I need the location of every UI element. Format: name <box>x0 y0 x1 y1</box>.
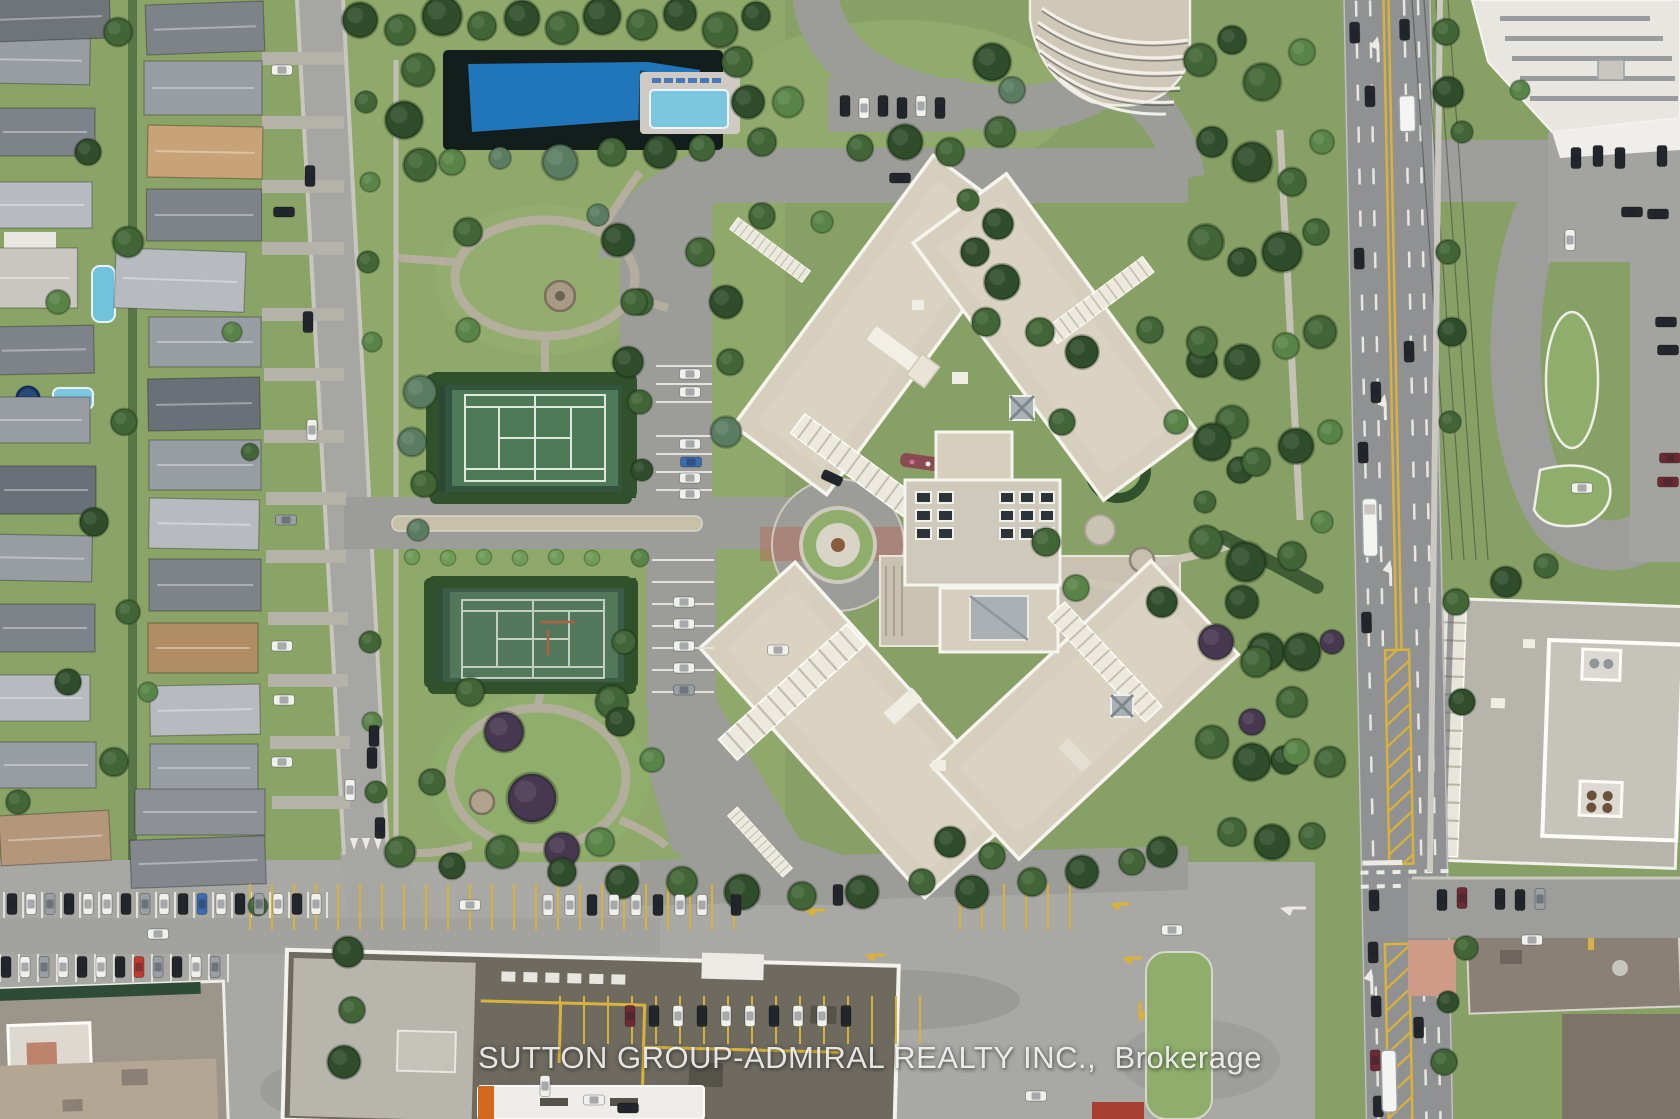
tree <box>1228 248 1257 277</box>
tree <box>548 858 577 887</box>
tree <box>1119 849 1145 875</box>
bottom-road <box>0 918 660 954</box>
tree <box>749 203 775 229</box>
car <box>817 1006 827 1027</box>
tree <box>1318 420 1342 444</box>
car <box>102 894 112 915</box>
tree <box>1066 336 1099 369</box>
tree <box>333 937 364 968</box>
tree <box>724 874 759 909</box>
car <box>745 1006 755 1027</box>
tennis-court-north <box>430 376 636 498</box>
car <box>273 894 283 915</box>
house-roof <box>0 35 90 85</box>
tree <box>1198 624 1233 659</box>
car <box>235 894 245 915</box>
tree <box>504 0 539 35</box>
tree <box>546 12 579 45</box>
car <box>148 929 169 939</box>
car <box>859 98 869 119</box>
tree <box>1254 824 1289 859</box>
car <box>197 894 207 915</box>
car <box>675 895 685 916</box>
car <box>367 748 377 769</box>
tree <box>1018 868 1047 897</box>
tree <box>512 550 527 565</box>
house-roof <box>150 744 258 792</box>
car <box>674 641 695 651</box>
tree <box>732 86 765 119</box>
tree <box>667 867 698 898</box>
tree <box>508 774 556 822</box>
tree <box>602 224 635 257</box>
tree <box>1137 317 1163 343</box>
tree <box>1190 526 1223 559</box>
car <box>1622 207 1643 217</box>
tree <box>748 128 777 157</box>
red-kiosk-roof <box>1092 1102 1144 1119</box>
car <box>375 818 385 839</box>
house-roof <box>147 189 262 241</box>
stop-bar <box>1362 860 1402 866</box>
transit-bus <box>1381 1050 1397 1112</box>
car <box>369 726 379 747</box>
tree <box>1437 991 1459 1013</box>
car <box>543 895 553 916</box>
car <box>1371 996 1381 1017</box>
tree <box>1310 130 1334 154</box>
tree <box>385 101 422 138</box>
car <box>840 96 850 117</box>
tree <box>222 322 242 342</box>
house-roof <box>0 534 92 582</box>
car <box>649 1006 659 1027</box>
tree <box>440 550 455 565</box>
tree <box>1443 589 1469 615</box>
tree <box>1194 491 1216 513</box>
rooftop-ac-unit <box>1010 396 1034 420</box>
tree <box>631 549 649 567</box>
tree <box>116 600 140 624</box>
car <box>890 173 911 183</box>
tree <box>846 876 879 909</box>
tree <box>1534 554 1558 578</box>
tree <box>360 172 380 192</box>
tree <box>104 18 133 47</box>
car <box>565 895 575 916</box>
tree <box>1233 743 1270 780</box>
tree <box>957 189 979 211</box>
car <box>680 439 701 449</box>
house-roof <box>0 0 111 42</box>
car <box>631 895 641 916</box>
tree <box>241 443 259 461</box>
loop-island-2 <box>1534 466 1610 527</box>
outdoor-pool <box>640 72 740 134</box>
tree <box>606 708 635 737</box>
car <box>1026 1091 1047 1101</box>
house-roof <box>149 317 261 367</box>
tree <box>644 136 677 169</box>
tree <box>385 15 416 46</box>
car <box>1522 935 1543 945</box>
car <box>1660 453 1680 463</box>
car <box>254 894 264 915</box>
car <box>1648 209 1669 219</box>
tree <box>1315 747 1346 778</box>
car <box>1368 942 1378 963</box>
tree <box>1241 647 1272 678</box>
tree <box>1049 409 1075 435</box>
car <box>674 663 695 673</box>
tree <box>328 1046 361 1079</box>
tree <box>357 251 379 273</box>
tree <box>111 409 137 435</box>
house-roof <box>0 604 95 652</box>
tree <box>999 77 1025 103</box>
car <box>134 957 144 978</box>
tree <box>887 124 922 159</box>
tree <box>468 12 497 41</box>
tree <box>1277 687 1308 718</box>
tree <box>972 308 1001 337</box>
tree <box>1436 240 1460 264</box>
house-roof <box>0 325 94 375</box>
tree <box>454 218 483 247</box>
tree <box>1320 630 1344 654</box>
tree <box>80 508 109 537</box>
house-roof <box>130 836 267 889</box>
car <box>697 895 707 916</box>
tree <box>984 264 1019 299</box>
tree <box>702 12 737 47</box>
car <box>1404 341 1414 362</box>
house-roof <box>148 623 258 673</box>
leftplaza-building <box>0 981 228 1119</box>
tree <box>742 2 771 31</box>
tree <box>612 630 636 654</box>
tree <box>1510 80 1530 100</box>
car <box>153 957 163 978</box>
car <box>935 98 945 119</box>
car <box>768 645 789 655</box>
car <box>653 895 663 916</box>
tree <box>456 678 485 707</box>
car <box>1572 483 1593 493</box>
tree <box>548 549 563 564</box>
topright-parking-strip <box>1630 262 1680 562</box>
car <box>1399 19 1409 40</box>
tree <box>439 853 465 879</box>
tree <box>1454 936 1478 960</box>
tree <box>1026 318 1055 347</box>
tree <box>55 669 81 695</box>
tree <box>1303 219 1329 245</box>
car <box>680 387 701 397</box>
tree <box>628 390 652 414</box>
house-roof <box>135 789 265 835</box>
car <box>897 98 907 119</box>
tree <box>1196 726 1229 759</box>
car <box>20 957 30 978</box>
tree <box>1187 327 1218 358</box>
tree <box>484 712 524 752</box>
car <box>307 420 317 441</box>
house-roof <box>144 61 262 115</box>
car <box>1457 888 1467 909</box>
lot-boulevard-island <box>1146 952 1212 1119</box>
tree <box>1491 567 1522 598</box>
tree <box>664 0 697 31</box>
tree <box>640 748 664 772</box>
tree <box>113 227 144 258</box>
house-roof <box>145 1 265 55</box>
tree <box>584 550 599 565</box>
tree <box>6 790 30 814</box>
car <box>769 1006 779 1027</box>
tree <box>788 882 817 911</box>
tree <box>1433 19 1459 45</box>
tree <box>1193 423 1230 460</box>
car <box>292 894 302 915</box>
tree <box>1304 316 1337 349</box>
car <box>1657 146 1667 167</box>
car <box>178 894 188 915</box>
tree <box>583 0 620 35</box>
tree <box>456 318 480 342</box>
tree <box>1066 856 1099 889</box>
tree <box>717 349 743 375</box>
tree <box>613 347 644 378</box>
rooftop-ac-unit <box>1111 695 1133 717</box>
tree <box>1449 689 1475 715</box>
watermark: SUTTON GROUP-ADMIRAL REALTY INC., Broker… <box>478 1040 1262 1076</box>
tree <box>909 869 935 895</box>
tree <box>1433 77 1464 108</box>
car <box>305 166 315 187</box>
car <box>159 894 169 915</box>
tree <box>385 837 416 868</box>
tree <box>1278 542 1307 571</box>
tree <box>1283 739 1309 765</box>
tree <box>1226 542 1266 582</box>
car <box>731 895 741 916</box>
car <box>681 457 702 467</box>
car <box>311 894 321 915</box>
house-roof <box>0 182 92 228</box>
car <box>1369 890 1379 911</box>
car <box>584 1095 605 1105</box>
backyard-pool <box>92 266 115 322</box>
tree <box>1032 528 1061 557</box>
tree <box>1438 318 1467 347</box>
car <box>1349 22 1359 43</box>
tree <box>961 238 990 267</box>
car <box>841 1006 851 1027</box>
tree <box>439 149 465 175</box>
car <box>1658 477 1679 487</box>
car <box>39 957 49 978</box>
car <box>115 957 125 978</box>
tree <box>486 836 519 869</box>
car <box>833 885 843 906</box>
tree <box>587 204 609 226</box>
car <box>721 1006 731 1027</box>
tree <box>621 289 647 315</box>
car <box>1358 442 1368 463</box>
tree <box>1262 232 1302 272</box>
tree <box>342 2 377 37</box>
tree <box>339 997 365 1023</box>
car <box>1354 248 1364 269</box>
tree <box>1278 168 1307 197</box>
tree <box>598 138 627 167</box>
bottomright-condo <box>1415 594 1680 879</box>
tree <box>847 135 873 161</box>
house-roof <box>147 125 263 179</box>
tree <box>411 471 437 497</box>
tree <box>419 769 445 795</box>
tennis-court-south <box>428 578 636 690</box>
car <box>191 957 201 978</box>
car <box>674 597 695 607</box>
car <box>272 65 293 75</box>
tree <box>973 43 1010 80</box>
tree <box>1273 333 1299 359</box>
tree <box>985 117 1016 148</box>
car <box>680 473 701 483</box>
tree <box>362 332 382 352</box>
car <box>878 96 888 117</box>
car <box>26 894 36 915</box>
house-roof <box>0 810 111 866</box>
car <box>680 489 701 499</box>
car <box>618 1103 639 1113</box>
tree <box>956 876 989 909</box>
tree <box>404 549 419 564</box>
tree <box>722 47 753 78</box>
tree <box>100 748 129 777</box>
car <box>274 207 295 217</box>
tree <box>1232 142 1272 182</box>
car <box>587 895 597 916</box>
tree <box>936 138 965 167</box>
house-roof <box>0 397 90 443</box>
tree <box>1243 63 1280 100</box>
car <box>680 369 701 379</box>
tree <box>476 549 491 564</box>
car <box>1565 230 1575 251</box>
house-roof <box>148 377 261 431</box>
car <box>793 1006 803 1027</box>
tree <box>489 147 511 169</box>
tree <box>1226 586 1259 619</box>
car <box>276 515 297 525</box>
tree <box>711 417 742 448</box>
car <box>609 895 619 916</box>
tree <box>1197 127 1228 158</box>
aerial-photo: SUTTON GROUP-ADMIRAL REALTY INC., Broker… <box>0 0 1680 1119</box>
house-roof <box>149 498 260 550</box>
tree <box>407 519 429 541</box>
house-roof <box>0 742 96 788</box>
car <box>1413 1017 1423 1038</box>
car <box>1370 1050 1380 1071</box>
house-roof <box>0 466 96 514</box>
tree <box>686 238 715 267</box>
yellow-hatched-median <box>1385 650 1413 864</box>
tree <box>1184 44 1217 77</box>
car <box>1593 146 1603 167</box>
tree <box>1218 818 1247 847</box>
entrance-median <box>392 516 702 531</box>
house-roof <box>149 559 261 611</box>
tree <box>586 828 615 857</box>
car <box>674 619 695 629</box>
tree <box>398 428 427 457</box>
tree <box>1299 823 1325 849</box>
tree <box>1451 121 1473 143</box>
tree <box>773 87 804 118</box>
car <box>1371 382 1381 403</box>
tree <box>404 376 437 409</box>
car <box>540 1076 550 1097</box>
car <box>64 894 74 915</box>
tree <box>1283 633 1320 670</box>
car <box>674 685 695 695</box>
tree <box>75 139 101 165</box>
tree <box>46 290 70 314</box>
car <box>216 894 226 915</box>
car <box>1571 148 1581 169</box>
car <box>210 957 220 978</box>
house-roof <box>150 684 261 736</box>
tree <box>983 209 1014 240</box>
car <box>1 957 11 978</box>
tree <box>689 135 715 161</box>
tree <box>631 459 653 481</box>
car <box>673 1006 683 1027</box>
tree <box>627 10 658 41</box>
tree <box>1218 26 1247 55</box>
tree <box>1311 511 1333 533</box>
transit-bus <box>1362 498 1378 556</box>
car <box>916 96 926 117</box>
car <box>1495 889 1505 910</box>
tree <box>1164 410 1188 434</box>
gazebo <box>470 790 494 814</box>
tree <box>355 91 377 113</box>
car <box>272 641 293 651</box>
salmon-sidewalk <box>1408 940 1456 996</box>
tree <box>1431 1049 1457 1075</box>
tree <box>138 682 158 702</box>
tree <box>1242 448 1271 477</box>
car <box>1515 890 1525 911</box>
car <box>77 957 87 978</box>
tree <box>402 54 435 87</box>
tree <box>1239 709 1265 735</box>
car <box>121 894 131 915</box>
tree <box>1439 411 1461 433</box>
tree <box>935 827 966 858</box>
car <box>460 900 481 910</box>
car <box>303 312 313 333</box>
box-truck <box>1399 95 1416 131</box>
tree <box>359 631 381 653</box>
car <box>172 957 182 978</box>
tree <box>710 286 743 319</box>
